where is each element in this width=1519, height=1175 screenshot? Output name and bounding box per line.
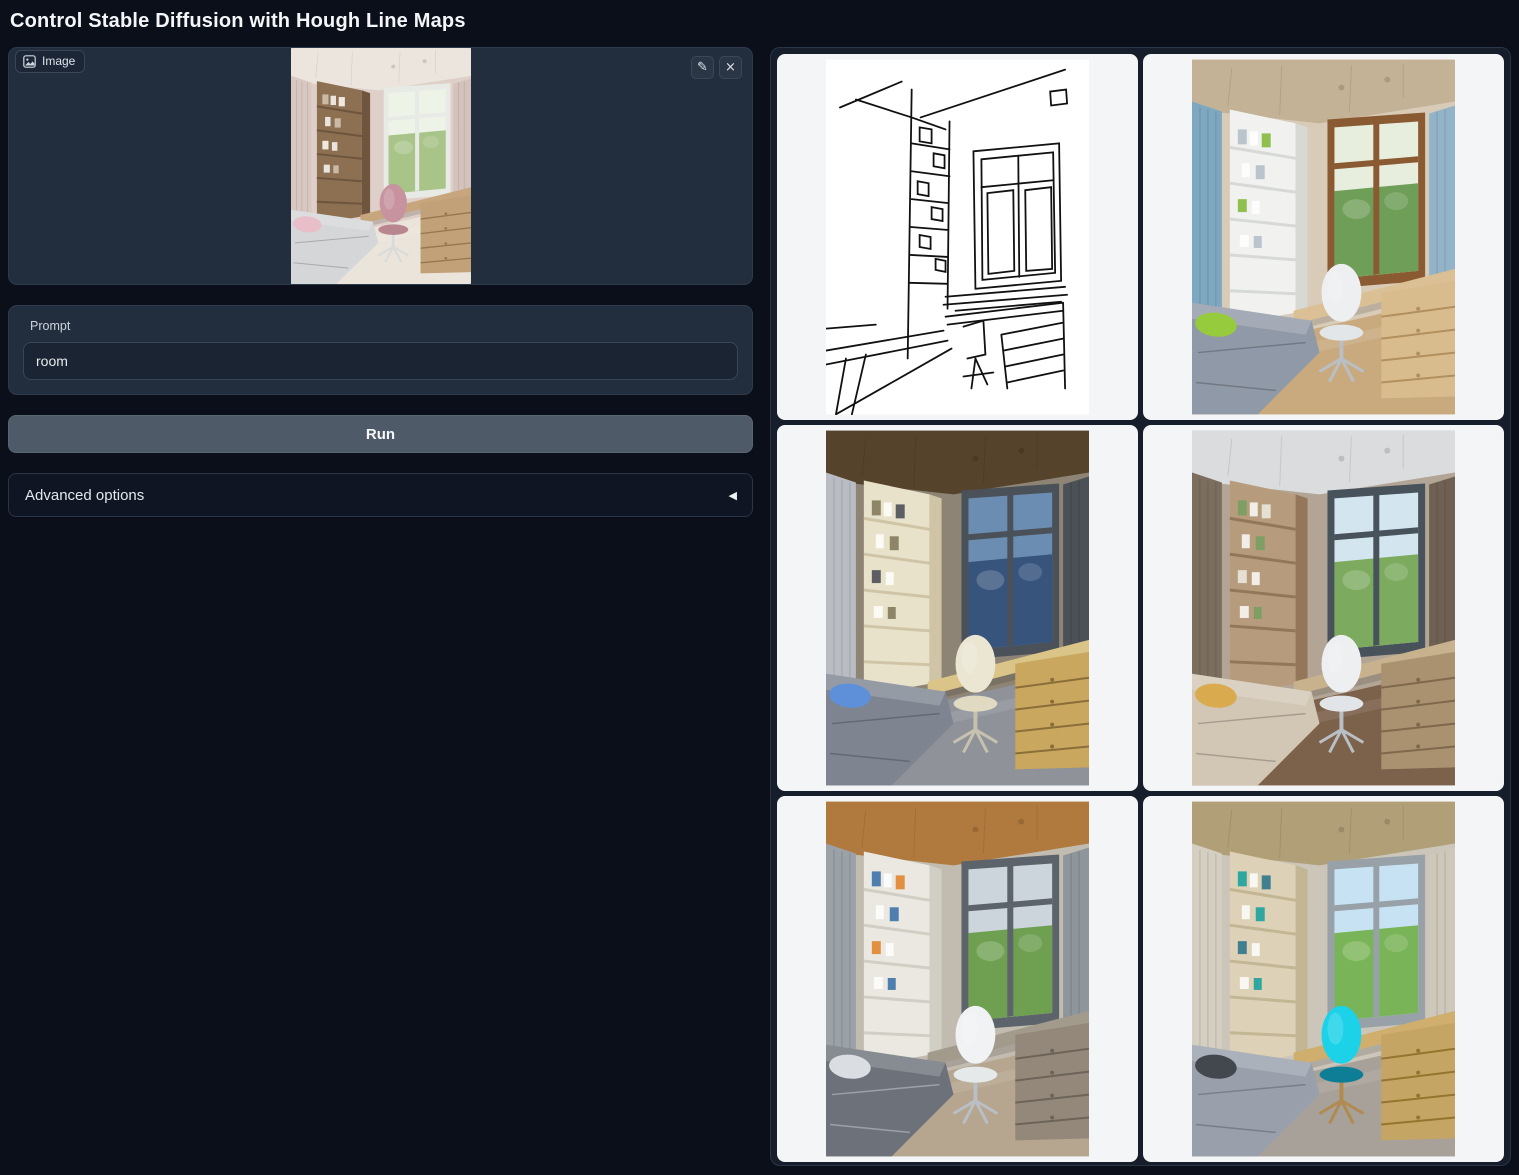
- generated-room-3-image: [1192, 430, 1455, 786]
- page-title: Control Stable Diffusion with Hough Line…: [10, 10, 1511, 33]
- uploaded-room-image: [291, 48, 471, 284]
- pencil-icon: ✎: [697, 61, 708, 74]
- controls-column: Image ✎ ×: [8, 47, 753, 517]
- advanced-options-accordion[interactable]: Advanced options ◀: [8, 473, 753, 517]
- gallery-item-generated-room-2[interactable]: [777, 425, 1138, 791]
- prompt-label: Prompt: [30, 319, 738, 333]
- generated-room-1-image: [1192, 59, 1455, 415]
- prompt-input[interactable]: [23, 342, 738, 380]
- image-label-badge: Image: [15, 50, 85, 73]
- gallery-item-generated-room-1[interactable]: [1143, 54, 1504, 420]
- image-label: Image: [42, 54, 75, 68]
- image-icon: [23, 55, 36, 68]
- clear-image-button[interactable]: ×: [719, 56, 742, 79]
- image-toolbar: ✎ ×: [691, 56, 742, 79]
- generated-room-5-image: [1192, 801, 1455, 1157]
- close-icon: ×: [725, 61, 736, 74]
- run-button[interactable]: Run: [8, 415, 753, 453]
- gallery-grid: [777, 54, 1504, 1159]
- hough-line-map-image: [826, 59, 1089, 415]
- main-layout: Image ✎ ×: [8, 47, 1511, 1166]
- generated-room-2-image: [826, 430, 1089, 786]
- uploaded-image-stage[interactable]: [9, 48, 752, 284]
- edit-image-button[interactable]: ✎: [691, 56, 714, 79]
- gallery-item-generated-room-4[interactable]: [777, 796, 1138, 1162]
- chevron-left-icon: ◀: [729, 489, 737, 502]
- gallery-panel: [770, 47, 1511, 1166]
- generated-room-4-image: [826, 801, 1089, 1157]
- gallery-item-generated-room-3[interactable]: [1143, 425, 1504, 791]
- image-upload-panel: Image ✎ ×: [8, 47, 753, 285]
- app: Control Stable Diffusion with Hough Line…: [0, 0, 1519, 1174]
- prompt-panel: Prompt: [8, 305, 753, 395]
- gallery-item-hough-line-map[interactable]: [777, 54, 1138, 420]
- gallery-item-generated-room-5[interactable]: [1143, 796, 1504, 1162]
- advanced-options-label: Advanced options: [25, 487, 144, 504]
